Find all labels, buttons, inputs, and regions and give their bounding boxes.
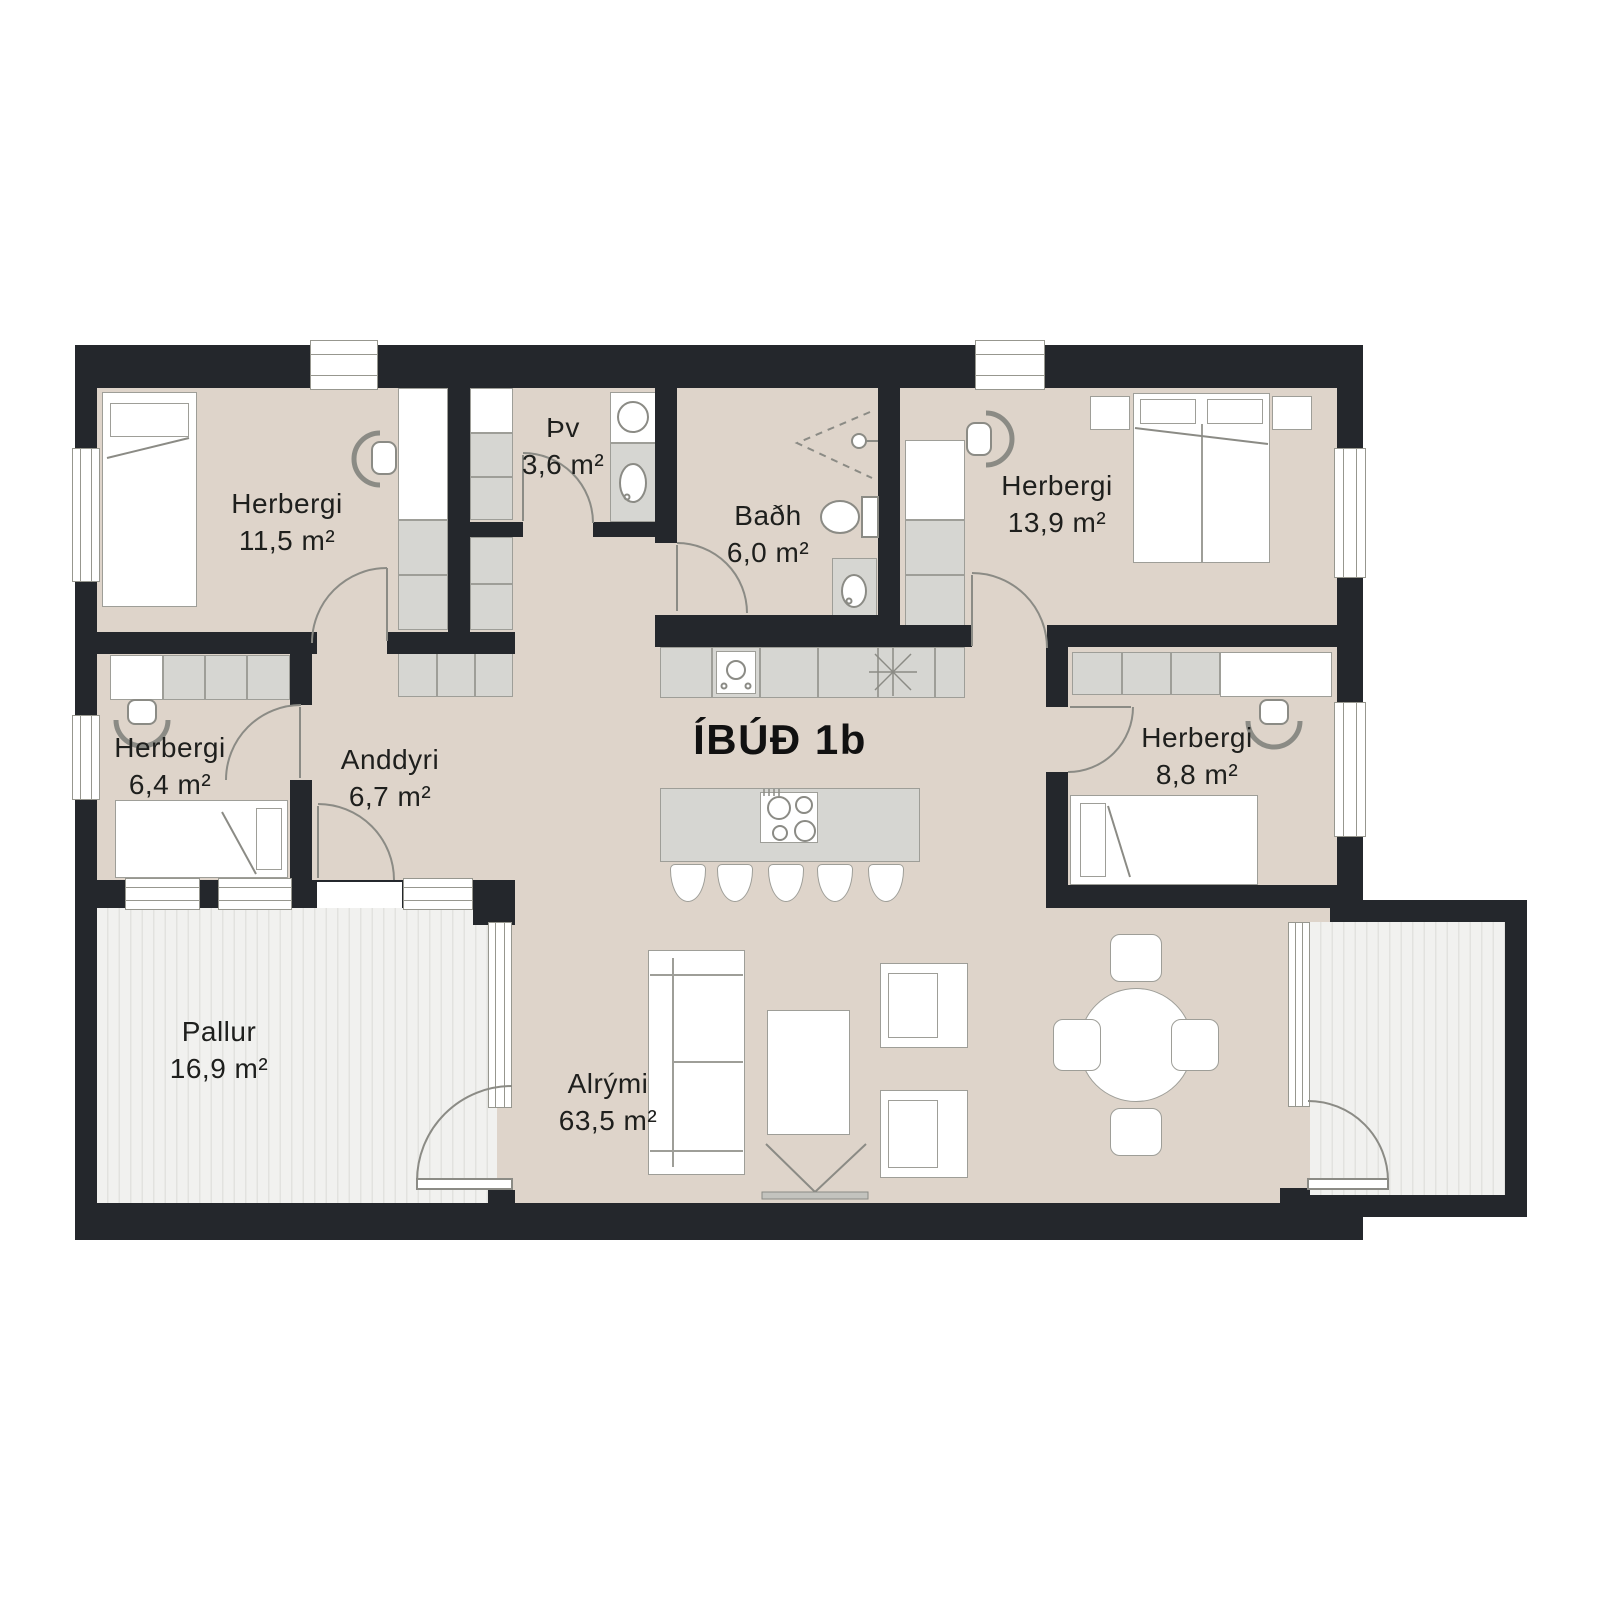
cooktop — [760, 792, 818, 843]
room-area: 13,9 m² — [1001, 505, 1112, 542]
anddyri-closet-cell — [398, 648, 437, 697]
hall-closet-cell — [470, 477, 513, 520]
wall-laundry-south-left — [448, 522, 523, 537]
window-deck-anddyri — [403, 878, 473, 910]
nightstand — [1272, 396, 1312, 430]
room-label-thv: Þv 3,6 m² — [522, 410, 604, 484]
window-left-bedroom115 — [72, 448, 100, 582]
window-top-bedroom115 — [310, 340, 378, 390]
wall-bedroom115-south-right — [387, 632, 515, 654]
kitchen-fridge-cell — [878, 647, 935, 698]
wardrobe-bedroom115 — [398, 388, 448, 520]
room-area: 11,5 m² — [231, 523, 342, 560]
pillow — [1140, 399, 1196, 424]
room-name: Anddyri — [341, 742, 439, 779]
closet-cell — [398, 520, 448, 575]
room-area: 6,4 m² — [114, 767, 225, 804]
armchair-cushion — [888, 1100, 938, 1168]
room-name: Herbergi — [1141, 720, 1252, 757]
room-label-herbergi-64: Herbergi 6,4 m² — [114, 730, 225, 804]
window-left-bedroom64 — [72, 715, 100, 800]
wall-bedroom64-east-upper — [290, 654, 312, 705]
sliding-window-right-deck — [1288, 922, 1310, 1107]
wall-bedroom139-south-left — [900, 625, 972, 647]
anddyri-closet-cell — [437, 648, 475, 697]
wall-bedroom64-east-lower — [290, 780, 312, 880]
wardrobe-bedroom139-cell — [905, 440, 965, 520]
bath-sink-counter — [832, 558, 877, 622]
window-top-bedroom139 — [975, 340, 1045, 390]
wall-bath-west — [655, 388, 677, 543]
laundry-sink-counter — [610, 443, 656, 522]
closet-bedroom64-cell — [163, 655, 205, 700]
room-name: Þv — [522, 410, 604, 447]
kitchen-sink — [716, 651, 756, 694]
dining-chair — [1110, 934, 1162, 982]
window-deck-bedroom64-a — [125, 878, 200, 910]
armchair-cushion — [888, 973, 938, 1038]
deck-wall-stub2 — [488, 1190, 515, 1203]
wardrobe-bedroom88-cell — [1171, 652, 1220, 695]
coffee-table — [767, 1010, 850, 1135]
hall-closet-cell — [470, 537, 513, 584]
sofa-armrest-line — [650, 974, 743, 976]
kitchen-counter-cell — [818, 647, 878, 698]
room-area: 6,0 m² — [727, 535, 809, 572]
wall-bedroom115-south-left — [97, 632, 317, 654]
anddyri-closet-cell — [475, 648, 513, 697]
closet-cell — [398, 575, 448, 630]
room-name: Baðh — [727, 498, 809, 535]
room-name: Herbergi — [1001, 468, 1112, 505]
room-area: 16,9 m² — [170, 1051, 268, 1088]
wall-bath-south — [655, 615, 900, 647]
wardrobe-bedroom139-cell — [905, 575, 965, 630]
sofa-cushion-line — [674, 1061, 743, 1063]
pillow — [256, 808, 282, 870]
kitchen-counter-cell — [660, 647, 712, 698]
wardrobe-bedroom139-cell — [905, 520, 965, 575]
hall-closet-cell — [470, 433, 513, 477]
right-deck-border-right — [1505, 900, 1527, 1217]
window-right-bedroom88 — [1334, 702, 1366, 837]
desk-bedroom88 — [1220, 652, 1332, 697]
room-name: Herbergi — [231, 486, 342, 523]
deck-wall-stub — [473, 880, 515, 925]
window-right-bedroom139 — [1334, 448, 1366, 578]
wall-hall-closet — [448, 388, 470, 632]
room-label-badh: Baðh 6,0 m² — [727, 498, 809, 572]
right-deck-stub — [1280, 1188, 1310, 1205]
room-area: 8,8 m² — [1141, 757, 1252, 794]
room-label-herbergi-139: Herbergi 13,9 m² — [1001, 468, 1112, 542]
room-area: 6,7 m² — [341, 779, 439, 816]
room-label-alrymi: Alrými 63,5 m² — [559, 1066, 657, 1140]
room-label-herbergi-115: Herbergi 11,5 m² — [231, 486, 342, 560]
wall-bottom — [75, 1203, 1363, 1240]
room-name: Pallur — [170, 1014, 268, 1051]
dining-chair — [1110, 1108, 1162, 1156]
closet-bedroom64-cell — [110, 655, 163, 700]
closet-bedroom64-cell — [205, 655, 247, 700]
window-deck-bedroom64-b — [218, 878, 292, 910]
kitchen-counter-cell — [760, 647, 818, 698]
floor-plan: ÍBÚÐ 1b Herbergi 11,5 m² Þv 3,6 m² Baðh … — [0, 0, 1600, 1600]
sofa-armrest-line — [650, 1150, 743, 1152]
wardrobe-bedroom88-cell — [1072, 652, 1122, 695]
wall-bedroom139-south-right — [1047, 625, 1337, 647]
room-label-pallur: Pallur 16,9 m² — [170, 1014, 268, 1088]
wardrobe-bedroom88-cell — [1122, 652, 1171, 695]
room-name: Alrými — [559, 1066, 657, 1103]
room-name: Herbergi — [114, 730, 225, 767]
deck-right — [1310, 922, 1505, 1195]
wall-bedroom88-south — [1046, 885, 1337, 908]
right-deck-border-bottom — [1309, 1195, 1527, 1217]
front-door-threshold — [317, 882, 402, 908]
wall-bath-east — [878, 388, 900, 623]
room-area: 3,6 m² — [522, 447, 604, 484]
right-deck-border-top — [1330, 900, 1527, 922]
pillow — [110, 403, 189, 437]
page-title: ÍBÚÐ 1b — [693, 716, 867, 764]
sliding-window-pallur — [488, 922, 512, 1108]
dining-chair — [1053, 1019, 1101, 1071]
wall-top — [75, 345, 1363, 388]
hall-closet-cell — [470, 584, 513, 630]
pillow — [1207, 399, 1263, 424]
wall-laundry-south-right — [593, 522, 660, 537]
wall-bedroom88-west-upper — [1046, 647, 1068, 707]
hall-closet-cell — [470, 388, 513, 433]
bed-center-line — [1201, 424, 1203, 563]
kitchen-counter-cell — [935, 647, 965, 698]
pillow — [1080, 803, 1106, 877]
room-area: 63,5 m² — [559, 1103, 657, 1140]
room-label-herbergi-88: Herbergi 8,8 m² — [1141, 720, 1252, 794]
washing-machine — [610, 392, 656, 443]
dining-chair — [1171, 1019, 1219, 1071]
nightstand — [1090, 396, 1130, 430]
deck-pallur — [97, 908, 497, 1203]
closet-bedroom64-cell — [247, 655, 290, 700]
room-label-anddyri: Anddyri 6,7 m² — [341, 742, 439, 816]
